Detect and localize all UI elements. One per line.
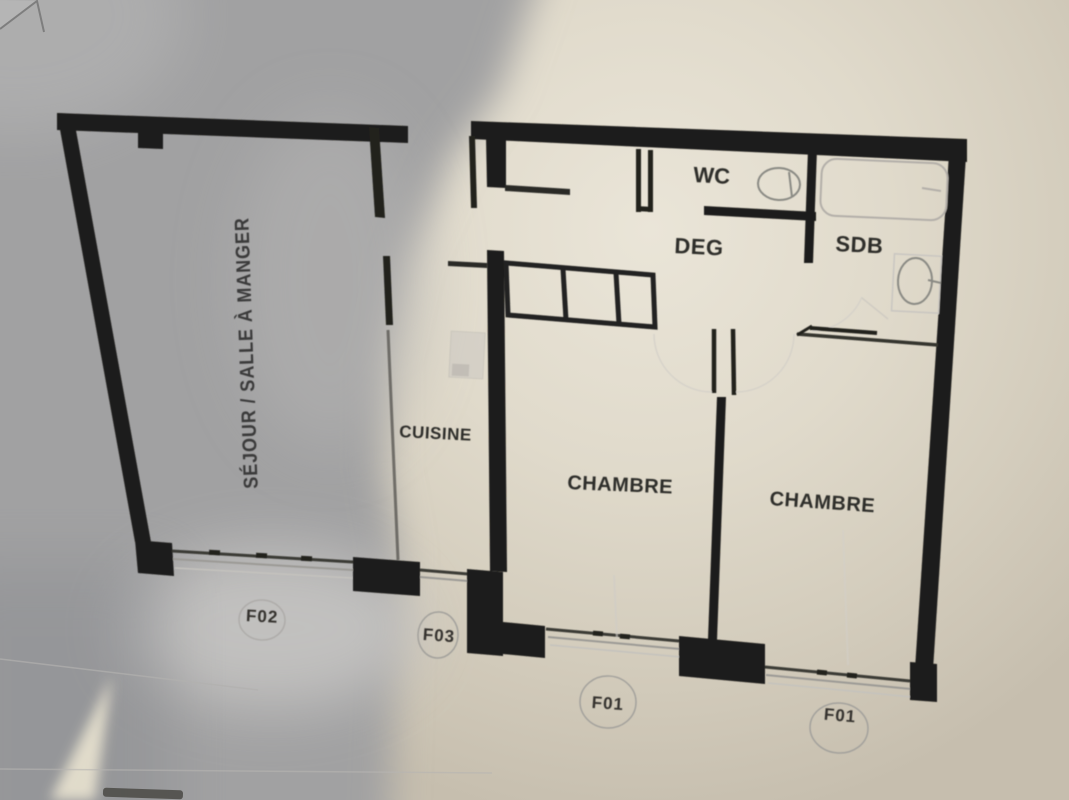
svg-text:DEG: DEG — [674, 233, 724, 261]
svg-text:F01: F01 — [823, 705, 857, 727]
svg-text:F01: F01 — [591, 693, 625, 714]
svg-text:F02: F02 — [246, 606, 279, 627]
svg-text:WC: WC — [693, 162, 731, 189]
svg-text:CUISINE: CUISINE — [399, 422, 472, 445]
svg-text:SDB: SDB — [835, 231, 884, 258]
svg-text:F03: F03 — [422, 625, 456, 646]
svg-text:CHAMBRE: CHAMBRE — [567, 472, 674, 499]
